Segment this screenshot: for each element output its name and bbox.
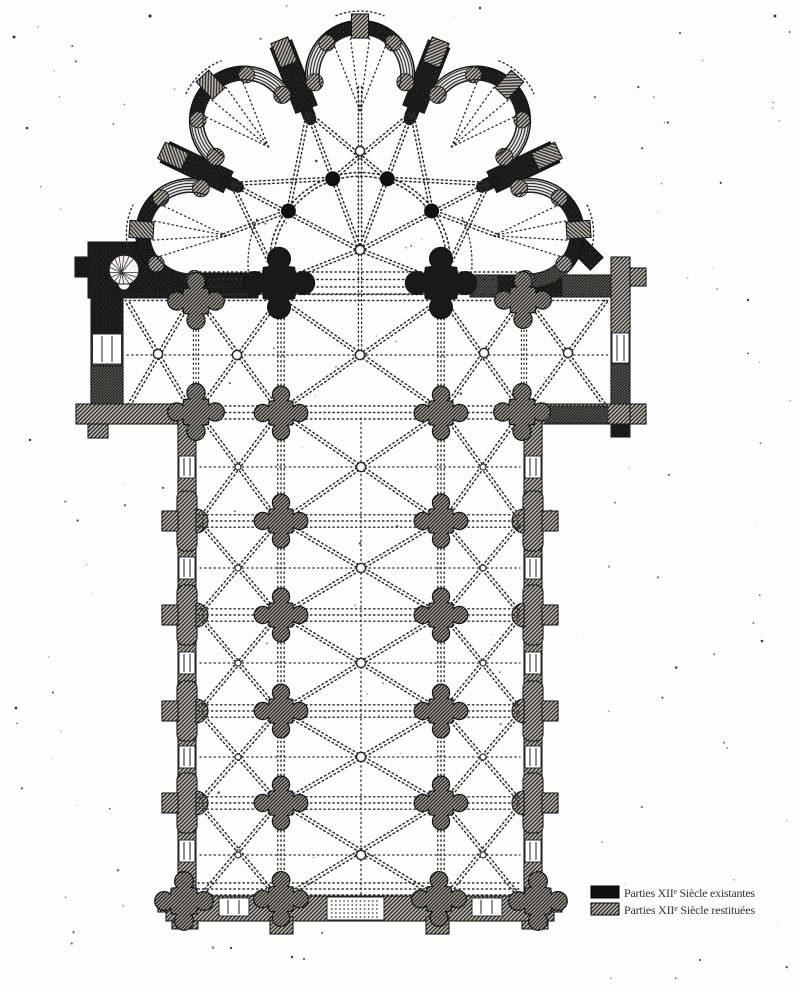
svg-text:Parties XIIe Siècle existantes: Parties XIIe Siècle existantes (624, 886, 755, 900)
svg-text:Parties XIIe Siècle restituées: Parties XIIe Siècle restituées (624, 903, 755, 917)
